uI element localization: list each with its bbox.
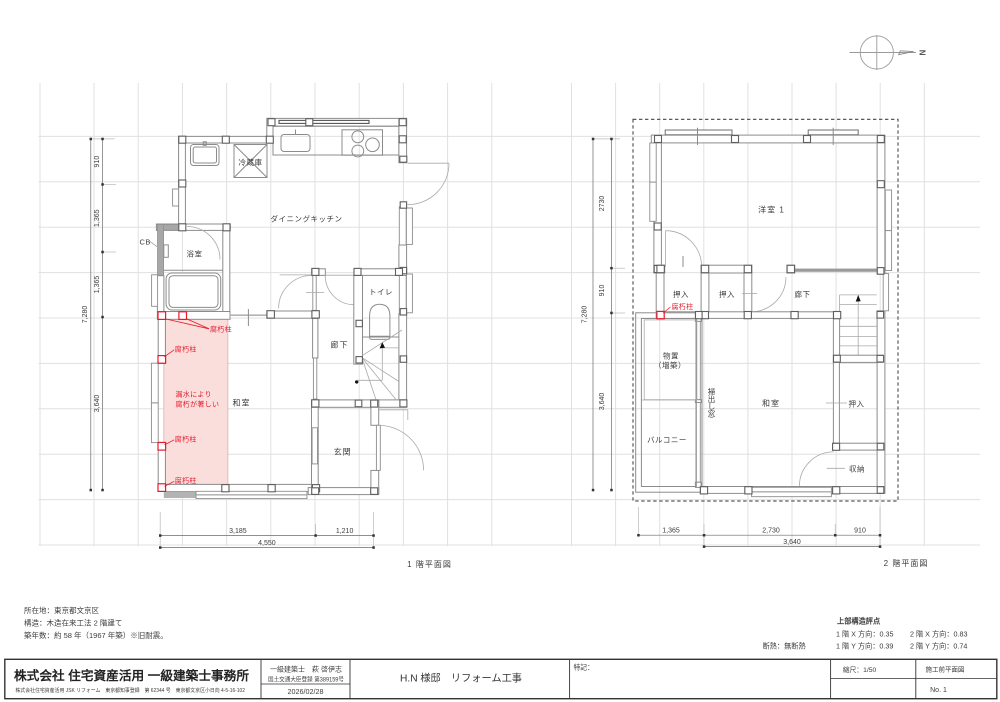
svg-text:和室: 和室 xyxy=(762,398,780,408)
svg-text:浴室: 浴室 xyxy=(187,249,203,259)
svg-text:物置: 物置 xyxy=(663,350,679,360)
svg-text:3,185: 3,185 xyxy=(229,528,247,535)
svg-text:1,365: 1,365 xyxy=(94,276,101,294)
svg-text:腐朽柱: 腐朽柱 xyxy=(175,476,197,485)
svg-text:腐朽柱: 腐朽柱 xyxy=(672,302,694,311)
svg-text:押入: 押入 xyxy=(673,289,689,299)
svg-text:910: 910 xyxy=(599,285,606,297)
svg-text:腐朽柱: 腐朽柱 xyxy=(175,434,197,443)
svg-text:バルコニー: バルコニー xyxy=(647,436,687,445)
svg-text:株式会社住宅資産活用 JSK リフォーム 東京都知事登録 第: 株式会社住宅資産活用 JSK リフォーム 東京都知事登録 第 62344 号 東… xyxy=(15,686,245,694)
svg-text:N: N xyxy=(917,50,926,56)
svg-text:2730: 2730 xyxy=(599,196,606,212)
svg-text:施工前平面図: 施工前平面図 xyxy=(926,664,965,673)
svg-text:2,730: 2,730 xyxy=(762,528,780,535)
svg-text:押入: 押入 xyxy=(719,289,735,299)
svg-text:1,365: 1,365 xyxy=(662,528,680,535)
svg-text:910: 910 xyxy=(94,156,101,168)
svg-text:2 階平面図: 2 階平面図 xyxy=(884,558,929,568)
svg-text:構造：木造在来工法 2 階建て: 構造：木造在来工法 2 階建て xyxy=(24,618,122,628)
svg-text:（増築）: （増築） xyxy=(654,360,686,370)
svg-text:2 階 X 方向：0.83: 2 階 X 方向：0.83 xyxy=(910,629,968,638)
svg-text:築年数：約 58 年（1967 年築）※旧耐震。: 築年数：約 58 年（1967 年築）※旧耐震。 xyxy=(24,630,168,640)
svg-text:7,280: 7,280 xyxy=(582,306,589,324)
svg-text:所在地：東京都文京区: 所在地：東京都文京区 xyxy=(24,605,99,615)
svg-text:腐朽柱: 腐朽柱 xyxy=(175,344,197,353)
svg-text:2026/02/28: 2026/02/28 xyxy=(288,687,324,696)
svg-text:1 階 X 方向：0.35: 1 階 X 方向：0.35 xyxy=(836,629,894,638)
svg-text:冷蔵庫: 冷蔵庫 xyxy=(239,157,263,167)
svg-text:3,640: 3,640 xyxy=(94,395,101,413)
svg-text:特記：: 特記： xyxy=(574,663,594,672)
svg-text:腐朽柱: 腐朽柱 xyxy=(210,324,232,333)
svg-text:国土交通大臣登録 第389159号: 国土交通大臣登録 第389159号 xyxy=(268,676,344,684)
svg-text:腐朽が著しい: 腐朽が著しい xyxy=(176,399,220,408)
svg-text:断熱：無断熱: 断熱：無断熱 xyxy=(763,641,806,650)
svg-text:1 階平面図: 1 階平面図 xyxy=(407,559,452,569)
svg-text:縮尺：1/50: 縮尺：1/50 xyxy=(843,665,877,674)
svg-text:H.N 様邸 リフォーム工事: H.N 様邸 リフォーム工事 xyxy=(400,672,522,685)
svg-text:押入: 押入 xyxy=(849,399,865,409)
svg-text:窓: 窓 xyxy=(708,408,716,418)
svg-text:廊下: 廊下 xyxy=(795,289,811,299)
svg-text:4,550: 4,550 xyxy=(258,540,276,547)
svg-text:ダイニングキッチン: ダイニングキッチン xyxy=(271,214,343,224)
svg-text:トイレ: トイレ xyxy=(369,288,393,297)
svg-text:7,280: 7,280 xyxy=(82,306,89,324)
svg-text:3,640: 3,640 xyxy=(783,539,801,546)
svg-text:1,365: 1,365 xyxy=(94,209,101,227)
svg-text:CB: CB xyxy=(140,237,151,246)
svg-text:2 階 Y 方向：0.74: 2 階 Y 方向：0.74 xyxy=(910,641,967,650)
svg-text:1 階 Y 方向：0.39: 1 階 Y 方向：0.39 xyxy=(836,641,893,650)
svg-text:3,640: 3,640 xyxy=(599,393,606,411)
svg-text:910: 910 xyxy=(854,528,866,535)
svg-text:株式会社 住宅資産活用 一級建築士事務所: 株式会社 住宅資産活用 一級建築士事務所 xyxy=(14,668,249,683)
svg-text:収納: 収納 xyxy=(849,464,865,474)
svg-text:漏水により: 漏水により xyxy=(176,390,212,399)
svg-text:No. 1: No. 1 xyxy=(930,687,947,694)
svg-text:玄関: 玄関 xyxy=(334,447,352,457)
svg-text:廊下: 廊下 xyxy=(331,340,349,350)
svg-text:一級建築士 萩 啓伊志: 一級建築士 萩 啓伊志 xyxy=(270,665,342,674)
svg-text:洋室 1: 洋室 1 xyxy=(758,205,785,215)
svg-text:上部構造評点: 上部構造評点 xyxy=(837,617,881,626)
svg-text:1,210: 1,210 xyxy=(336,528,354,535)
svg-text:和室: 和室 xyxy=(233,398,251,408)
